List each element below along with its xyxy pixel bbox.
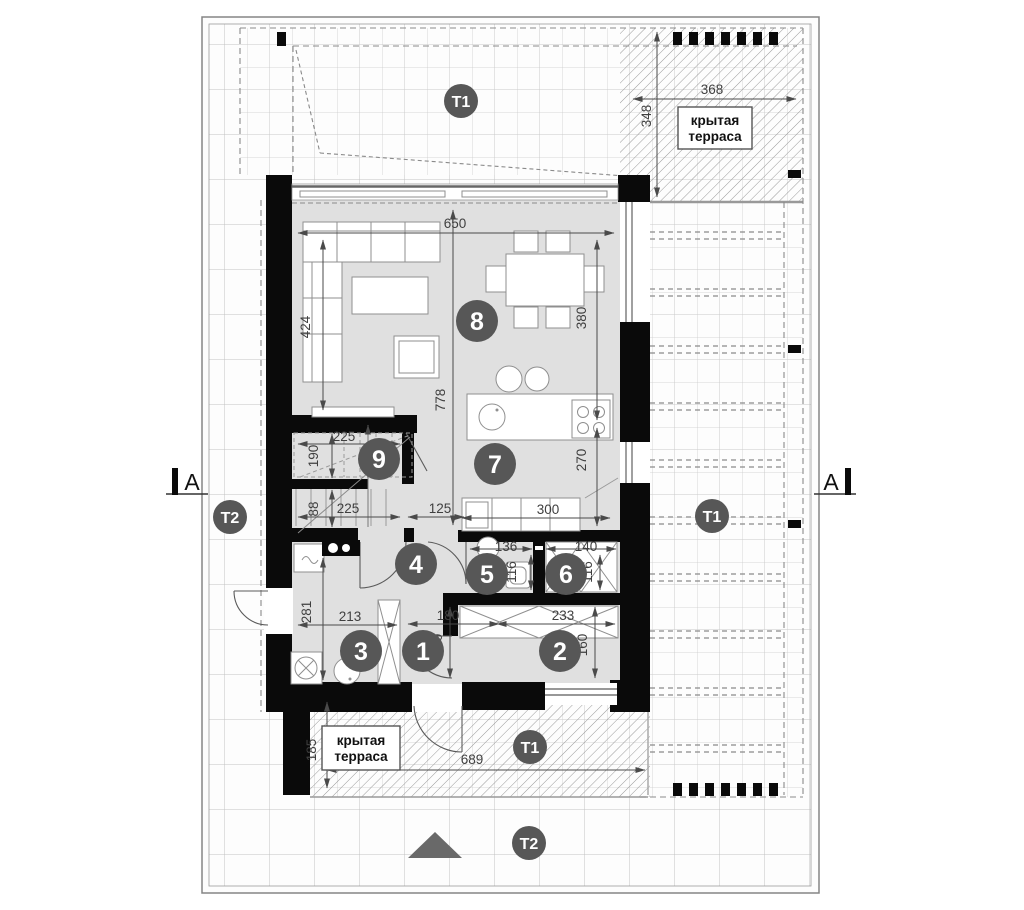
svg-text:2: 2 [553, 638, 567, 666]
zone-badge-t2-south: T2 [512, 826, 546, 860]
dim-utility-width: 213 [339, 609, 362, 624]
coffee-table [352, 277, 428, 314]
room-badge-6: 6 [545, 553, 587, 595]
sliding-glass-wall [292, 184, 618, 200]
room-badge-9: 9 [358, 438, 400, 480]
svg-text:T1: T1 [703, 509, 722, 526]
dim-dining-depth: 380 [574, 307, 589, 330]
svg-text:T1: T1 [452, 94, 471, 111]
terrace-label-line2: терраса [334, 749, 388, 764]
bar-stool [525, 367, 549, 391]
boiler [294, 544, 324, 572]
zone-badge-t1-east: T1 [695, 499, 729, 533]
svg-text:6: 6 [559, 561, 573, 589]
section-label: A [184, 469, 200, 495]
room-badge-3: 3 [340, 630, 382, 672]
dim-living-width: 650 [444, 216, 467, 231]
svg-text:5: 5 [480, 561, 494, 589]
svg-text:8: 8 [470, 308, 484, 336]
dim-wc-width: 136 [495, 539, 518, 554]
svg-text:T2: T2 [221, 510, 240, 527]
dim-kitchen-depth: 270 [574, 449, 589, 472]
dim-entry-width: 180 [437, 608, 460, 623]
svg-text:3: 3 [354, 638, 368, 666]
room-badge-4: 4 [395, 543, 437, 585]
bar-stool [496, 366, 522, 392]
section-label: A [823, 469, 839, 495]
dim-stair-top-depth: 190 [306, 445, 321, 468]
window-room2-south [545, 683, 617, 705]
svg-text:9: 9 [372, 446, 386, 474]
dim-living-depth: 424 [298, 315, 313, 338]
dim-utility-depth: 281 [299, 601, 314, 624]
room2-wardrobe [460, 606, 618, 638]
dim-stair-top-width: 225 [333, 429, 356, 444]
dim-terrace-south-depth: 185 [304, 739, 319, 762]
dim-room2-width: 233 [552, 608, 575, 623]
room-badge-1: 1 [402, 630, 444, 672]
utility-tall-cabinet [378, 600, 400, 684]
dim-terrace-east-width: 368 [701, 82, 724, 97]
terrace-east-grid [648, 175, 803, 797]
closet-door-jamb [535, 546, 543, 550]
svg-text:1: 1 [416, 638, 430, 666]
terrace-label-south: крытая терраса [322, 726, 400, 770]
terrace-label-line1: крытая [691, 113, 740, 128]
svg-text:7: 7 [488, 451, 502, 479]
armchair [394, 336, 439, 378]
kitchen-counter [462, 498, 580, 531]
room-badge-2: 2 [539, 630, 581, 672]
utility-counter-sink [322, 540, 360, 556]
floor-plan-page: 650 424 380 778 270 225 190 88 225 125 3… [0, 0, 1024, 910]
room-badge-5: 5 [466, 553, 508, 595]
dim-terrace-east-depth: 348 [639, 105, 654, 128]
dim-stair-bottom-width: 225 [337, 501, 360, 516]
room-badge-7: 7 [474, 443, 516, 485]
washing-machine [291, 652, 322, 684]
floor-plan-drawing: 650 424 380 778 270 225 190 88 225 125 3… [0, 0, 1024, 910]
dim-stair-bottom-depth: 88 [306, 501, 321, 516]
zone-badge-t2-west: T2 [213, 500, 247, 534]
dim-closet-width: 140 [575, 539, 598, 554]
dim-interior-depth: 778 [433, 389, 448, 412]
dim-counter-width: 300 [537, 502, 560, 517]
svg-text:T2: T2 [520, 836, 539, 853]
zone-badge-t1-north: T1 [444, 84, 478, 118]
terrace-label-east: крытая терраса [678, 107, 752, 149]
terrace-label-line1: крытая [337, 733, 386, 748]
svg-text:T1: T1 [521, 740, 540, 757]
dim-terrace-south-width: 689 [461, 752, 484, 767]
window-dining-east [620, 202, 650, 322]
zone-badge-t1-south: T1 [513, 730, 547, 764]
tv-bench [312, 407, 394, 417]
terrace-label-line2: терраса [688, 129, 742, 144]
window-kitchen-east [620, 442, 650, 483]
room-badge-8: 8 [456, 300, 498, 342]
kitchen-island [467, 394, 613, 440]
svg-text:4: 4 [409, 551, 423, 579]
section-marker-right: A [814, 468, 856, 495]
dim-hall-passage: 125 [429, 501, 452, 516]
